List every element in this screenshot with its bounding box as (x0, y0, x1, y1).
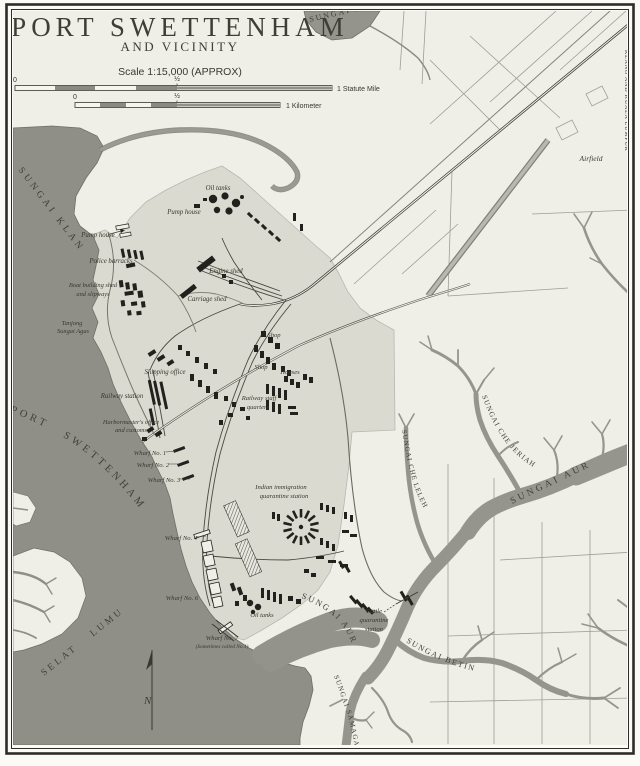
label-indian-immigration-2: quarantine station (260, 493, 309, 500)
label-harbormaster-1: Harbormaster's office (102, 419, 159, 426)
label-wharf-4: Wharf No. 4 (165, 535, 198, 542)
map-scale-text: Scale 1:15,000 (APPROX) (118, 66, 242, 78)
label-wharf-3: Wharf No. 3 (148, 477, 181, 484)
label-oil-tanks-north: Oil tanks (206, 185, 231, 192)
label-shop-south: Shop (254, 364, 268, 371)
label-wharf-7-2: (Sometimes called No.1) (196, 643, 249, 650)
label-oil-tanks-south: Oil tanks (250, 612, 274, 619)
label-railway-staff-2: quarters (247, 404, 270, 411)
map-title: PORT SWETTENHAM (11, 12, 349, 42)
label-harbormaster-2: and customs (115, 427, 147, 434)
label-railway-station: Railway station (100, 393, 144, 400)
label-pump-house-north: Pump house (166, 209, 200, 216)
label-houses: Houses (279, 369, 300, 376)
label-railway-staff-1: Railway staff (241, 395, 278, 402)
map-canvas: N PORT SWETTENHAM AND VICINITY Scale 1:1… (0, 0, 640, 766)
label-shop-north: Shop (267, 332, 281, 339)
map-subtitle: AND VICINITY (121, 39, 240, 54)
label-cattle-3: station (365, 626, 384, 633)
label-boat-building-1: Boat building shed (69, 282, 118, 289)
port-swettenham-map-svg: N PORT SWETTENHAM AND VICINITY Scale 1:1… (0, 0, 640, 766)
label-indian-immigration-1: Indian immigration (254, 484, 307, 491)
km-end: 1 Kilometer (286, 103, 322, 110)
map-content: N PORT SWETTENHAM AND VICINITY Scale 1:1… (0, 0, 636, 754)
label-wharf-2: Wharf No. 2 (137, 462, 170, 469)
label-shipping-office: Shipping office (145, 369, 186, 376)
label-cattle-2: quarantine (360, 617, 389, 624)
label-pump-house-west: Pump house (80, 232, 114, 239)
label-engine-shed: Engine shed (208, 268, 243, 275)
label-cattle-1: Cattle (366, 608, 382, 615)
label-wharf-6: Wharf No. 6 (166, 595, 199, 602)
label-wharf-7-1: Wharf No. 7 (206, 635, 239, 642)
label-tanjong-1: Tanjong (62, 320, 84, 327)
km-zero: 0 (73, 94, 77, 101)
mile-zero: 0 (13, 77, 17, 84)
km-half: ½ (174, 92, 180, 100)
label-police-barracks: Police barracks (88, 258, 133, 265)
label-wharf-1: Wharf No. 1 (134, 450, 166, 457)
label-boat-building-2: and slipways (76, 291, 110, 298)
label-tanjong-2: Sungai Agas (57, 328, 90, 335)
label-carriage-shed: Carriage shed (187, 296, 227, 303)
label-airfield: Airfield (579, 154, 603, 163)
mile-end: 1 Statute Mile (337, 86, 380, 93)
north-label: N (143, 695, 152, 707)
mile-half: ½ (174, 75, 180, 83)
